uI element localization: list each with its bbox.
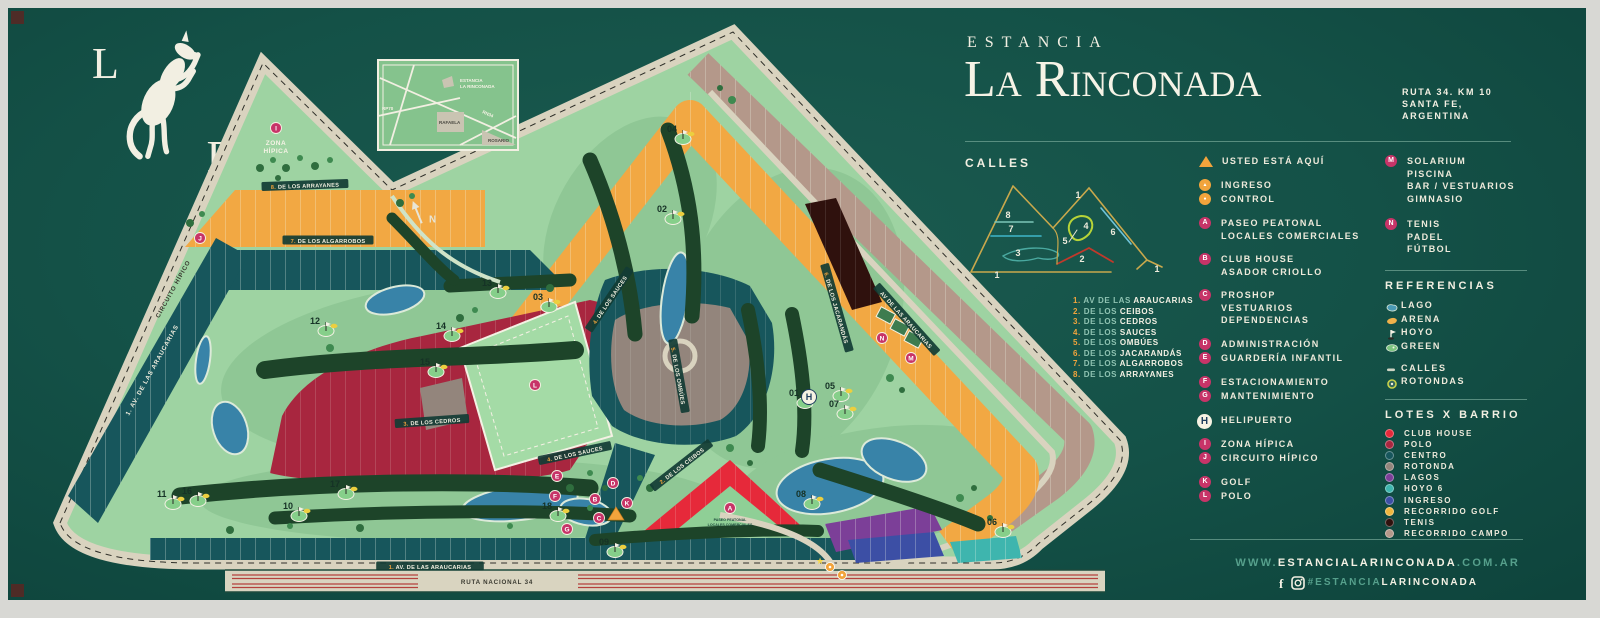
legend-item: GMANTENIMIENTO [1199, 390, 1369, 403]
facility-label-line: SOLARIUM [1407, 155, 1515, 168]
street-list-item: 6. DE LOS JACARANDÁS [1073, 349, 1203, 360]
website-url[interactable]: WWW.ESTANCIALARINCONADA.COM.AR [1235, 557, 1520, 569]
poster-frame: L R [0, 0, 1600, 618]
marker-H: H [1197, 414, 1212, 429]
lote-barrio-item: CENTRO [1385, 451, 1535, 460]
legend-group: APASEO PEATONALLOCALES COMERCIALES [1199, 217, 1369, 242]
referencias-heading: REFERENCIAS [1385, 280, 1535, 292]
calles-icon [1385, 364, 1399, 375]
marker-M: M [1385, 155, 1397, 167]
referencia-item: HOYO [1385, 327, 1535, 338]
street-list-item: 3. DE LOS CEDROS [1073, 317, 1203, 328]
barrio-label: CENTRO [1404, 451, 1447, 460]
barrio-label: HOYO 6 [1404, 484, 1444, 493]
calles-heading: CALLES [965, 156, 1190, 170]
lote-barrio-item: POLO [1385, 440, 1535, 449]
barrio-label: POLO [1404, 440, 1433, 449]
section-divider [1385, 270, 1527, 271]
lote-barrio-item: RECORRIDO CAMPO [1385, 529, 1535, 538]
referencia-icon [1385, 362, 1401, 373]
street-number: 8. [1073, 370, 1084, 379]
marker-N: N [1385, 218, 1397, 230]
social-hashtag[interactable]: #ESTANCIALARINCONADA [1308, 577, 1478, 588]
referencia-item: GREEN [1385, 340, 1535, 351]
diagram-street-number: 1 [1075, 190, 1080, 200]
legend-item: FESTACIONAMIENTO [1199, 376, 1369, 389]
legend-marker: K [1199, 476, 1212, 489]
barrio-label: ROTONDA [1404, 462, 1456, 471]
map-legend: USTED ESTÁ AQUÍ▲INGRESO●CONTROLAPASEO PE… [1199, 155, 1369, 514]
legend-item: APASEO PEATONALLOCALES COMERCIALES [1199, 217, 1369, 242]
facility-label-line: GIMNASIO [1407, 193, 1515, 206]
marker-C: C [1199, 289, 1211, 301]
street-name: CEIBOS [1120, 307, 1154, 316]
marker-B: B [1199, 253, 1211, 265]
legend-label-line: LOCALES COMERCIALES [1221, 230, 1360, 243]
legend-marker: H [1199, 414, 1212, 427]
legend-item: IZONA HÍPICA [1199, 438, 1369, 451]
legend-marker: J [1199, 452, 1212, 465]
arena-icon [1385, 315, 1399, 326]
brand-pretitle: ESTANCIA [967, 34, 1109, 52]
facility-marker: M [1385, 155, 1398, 168]
footer-divider [1190, 539, 1523, 540]
street-number: 4. [1073, 328, 1084, 337]
referencia-label: ARENA [1401, 314, 1441, 324]
diagram-street-number: 7 [1008, 224, 1013, 234]
legend-label: USTED ESTÁ AQUÍ [1222, 155, 1325, 168]
marker-G: G [1199, 390, 1211, 402]
street-list-item: 2. DE LOS CEIBOS [1073, 307, 1203, 318]
lote-barrio-item: LAGOS [1385, 473, 1535, 482]
street-name: OMBÚES [1120, 338, 1159, 347]
calles-diagram: 8731145261 [961, 172, 1171, 292]
hashtag-prefix: #ESTANCIA [1308, 577, 1382, 588]
lote-barrio-item: RECORRIDO GOLF [1385, 507, 1535, 516]
street-prefix: AV DE LAS [1083, 296, 1133, 305]
referencia-label: CALLES [1401, 363, 1447, 373]
url-suffix: .COM.AR [1457, 557, 1520, 569]
street-name: ARRAYANES [1120, 370, 1175, 379]
legend-marker: F [1199, 376, 1212, 389]
legend-label-line: ZONA HÍPICA [1221, 438, 1295, 451]
street-name: ARAUCARIAS [1133, 296, 1193, 305]
referencia-item: LAGO [1385, 300, 1535, 311]
street-prefix: DE LOS [1084, 317, 1120, 326]
legend-item: USTED ESTÁ AQUÍ [1199, 155, 1369, 168]
referencia-label: LAGO [1401, 300, 1433, 310]
lago-icon [1385, 302, 1399, 313]
street-number: 1. [1073, 296, 1083, 305]
barrio-color-dot [1385, 518, 1394, 527]
referencia-label: GREEN [1401, 341, 1441, 351]
hoyo-icon [1385, 329, 1399, 340]
facility-label-line: FÚTBOL [1407, 243, 1452, 256]
legend-group: USTED ESTÁ AQUÍ [1199, 155, 1369, 168]
marker-L: L [1199, 490, 1211, 502]
legend-item: JCIRCUITO HÍPICO [1199, 452, 1369, 465]
legend-marker: L [1199, 490, 1212, 503]
facility-group: MSOLARIUMPISCINABAR / VESTUARIOSGIMNASIO [1385, 155, 1535, 205]
legend-group: FESTACIONAMIENTOGMANTENIMIENTO [1199, 376, 1369, 403]
lotes-heading: LOTES X BARRIO [1385, 409, 1535, 421]
marker-E: E [1199, 352, 1211, 364]
legend-item: ▲INGRESO [1199, 179, 1369, 192]
legend-group: DADMINISTRACIÓNEGUARDERÍA INFANTIL [1199, 338, 1369, 365]
barrio-color-dot [1385, 496, 1394, 505]
marker-D: D [1199, 338, 1211, 350]
ingreso-marker-icon: ▲ [1199, 179, 1211, 191]
facility-marker: N [1385, 218, 1398, 231]
barrio-label: RECORRIDO CAMPO [1404, 529, 1509, 538]
legend-label-line: ADMINISTRACIÓN [1221, 338, 1320, 351]
diagram-street-number: 5 [1062, 236, 1067, 246]
legend-label-line: VESTUARIOS [1221, 302, 1309, 315]
legend-item: ●CONTROL [1199, 193, 1369, 206]
diagram-street-number: 8 [1005, 210, 1010, 220]
legend-label-line: PROSHOP [1221, 289, 1309, 302]
referencia-item: ARENA [1385, 313, 1535, 324]
marker-K: K [1199, 476, 1211, 488]
barrio-color-dot [1385, 473, 1394, 482]
legend-label-line: MANTENIMIENTO [1221, 390, 1315, 403]
legend-group: KGOLFLPOLO [1199, 476, 1369, 503]
facility-group: NTENISPADELFÚTBOL [1385, 218, 1535, 256]
referencia-icon [1385, 340, 1401, 351]
legend-group: BCLUB HOUSEASADOR CRIOLLO [1199, 253, 1369, 278]
facility-item: MSOLARIUMPISCINABAR / VESTUARIOSGIMNASIO [1385, 155, 1535, 205]
legend-item: EGUARDERÍA INFANTIL [1199, 352, 1369, 365]
referencia-icon [1385, 313, 1401, 324]
street-number: 6. [1073, 349, 1084, 358]
legend-label-line: USTED ESTÁ AQUÍ [1222, 155, 1325, 168]
lote-barrio-item: HOYO 6 [1385, 484, 1535, 493]
legend-label-line: ESTACIONAMIENTO [1221, 376, 1329, 389]
legend-marker: A [1199, 217, 1212, 230]
lote-barrio-item: ROTONDA [1385, 462, 1535, 471]
marker-I: I [1199, 438, 1211, 450]
marker-F: F [1199, 376, 1211, 388]
street-list-item: 4. DE LOS SAUCES [1073, 328, 1203, 339]
diagram-street-number: 1 [994, 270, 999, 280]
legend-label: GOLF [1221, 476, 1252, 489]
diagram-street-number: 3 [1015, 248, 1020, 258]
chalkboard-background: L R [8, 8, 1586, 600]
facility-label-line: TENIS [1407, 218, 1452, 231]
street-name: ALGARROBOS [1120, 359, 1184, 368]
legend-marker: B [1199, 253, 1212, 266]
info-panel: ESTANCIA La Rinconada RUTA 34. KM 10 SAN… [8, 8, 1586, 600]
legend-marker: I [1199, 438, 1212, 451]
legend-label-line: CONTROL [1221, 193, 1275, 206]
street-list-item: 1. AV DE LAS ARAUCARIAS [1073, 296, 1203, 307]
rotondas-icon [1385, 378, 1399, 389]
lotes-list: CLUB HOUSEPOLOCENTROROTONDALAGOSHOYO 6IN… [1385, 429, 1535, 539]
legend-label-line: GOLF [1221, 476, 1252, 489]
barrio-label: LAGOS [1404, 473, 1440, 482]
green-icon [1385, 342, 1399, 353]
page-title: La Rinconada [964, 52, 1261, 108]
street-prefix: DE LOS [1084, 349, 1120, 358]
right-column: MSOLARIUMPISCINABAR / VESTUARIOSGIMNASIO… [1385, 155, 1535, 540]
legend-label-line: PASEO PEATONAL [1221, 217, 1360, 230]
street-number: 2. [1073, 307, 1084, 316]
referencias-list: LAGOARENAHOYOGREENCALLESROTONDAS [1385, 300, 1535, 387]
legend-group: ▲INGRESO●CONTROL [1199, 179, 1369, 206]
address-block: RUTA 34. KM 10 SANTA FE, ARGENTINA [1402, 86, 1492, 122]
facility-item: NTENISPADELFÚTBOL [1385, 218, 1535, 256]
legend-label: PROSHOPVESTUARIOSDEPENDENCIAS [1221, 289, 1309, 327]
social-icons: f [1278, 576, 1308, 590]
lote-barrio-item: TENIS [1385, 518, 1535, 527]
barrio-color-dot [1385, 484, 1394, 493]
legend-label-line: DEPENDENCIAS [1221, 314, 1309, 327]
lote-barrio-item: INGRESO [1385, 496, 1535, 505]
address-line: SANTA FE, [1402, 98, 1492, 110]
title-divider [965, 141, 1511, 142]
referencia-label: HOYO [1401, 327, 1434, 337]
barrio-color-dot [1385, 429, 1394, 438]
url-main: ESTANCIALARINCONADA [1278, 557, 1457, 569]
legend-label-line: HELIPUERTO [1221, 414, 1293, 427]
barrio-label: CLUB HOUSE [1404, 429, 1473, 438]
referencia-item: CALLES [1385, 362, 1535, 373]
legend-marker: D [1199, 338, 1212, 351]
referencia-icon [1385, 327, 1401, 338]
referencia-icon [1385, 376, 1401, 387]
barrio-color-dot [1385, 462, 1394, 471]
legend-label-line: INGRESO [1221, 179, 1272, 192]
legend-label: POLO [1221, 490, 1252, 503]
marker-A: A [1199, 217, 1211, 229]
street-prefix: DE LOS [1084, 338, 1120, 347]
legend-label-line: GUARDERÍA INFANTIL [1221, 352, 1343, 365]
facility-label-line: PISCINA [1407, 168, 1515, 181]
lote-barrio-item: CLUB HOUSE [1385, 429, 1535, 438]
control-marker-icon: ● [1199, 193, 1211, 205]
usted-esta-aqui-icon [1199, 156, 1213, 167]
barrio-label: RECORRIDO GOLF [1404, 507, 1500, 516]
url-prefix: WWW. [1235, 557, 1277, 569]
facility-label: TENISPADELFÚTBOL [1407, 218, 1452, 256]
legend-marker: E [1199, 352, 1212, 365]
legend-label: ADMINISTRACIÓN [1221, 338, 1320, 351]
street-prefix: DE LOS [1084, 307, 1120, 316]
street-number: 7. [1073, 359, 1084, 368]
street-name: SAUCES [1120, 328, 1157, 337]
legend-label: PASEO PEATONALLOCALES COMERCIALES [1221, 217, 1360, 242]
street-list-item: 5. DE LOS OMBÚES [1073, 338, 1203, 349]
legend-label: ZONA HÍPICA [1221, 438, 1295, 451]
legend-label-line: ASADOR CRIOLLO [1221, 266, 1323, 279]
legend-marker: ▲ [1199, 179, 1212, 192]
legend-label-line: CIRCUITO HÍPICO [1221, 452, 1319, 465]
street-name: JACARANDÁS [1120, 349, 1182, 358]
street-prefix: DE LOS [1084, 328, 1120, 337]
facility-label: SOLARIUMPISCINABAR / VESTUARIOSGIMNASIO [1407, 155, 1515, 205]
legend-marker: ● [1199, 193, 1212, 206]
street-number: 3. [1073, 317, 1084, 326]
street-prefix: DE LOS [1084, 370, 1120, 379]
legend-item: DADMINISTRACIÓN [1199, 338, 1369, 351]
street-list-item: 7. DE LOS ALGARROBOS [1073, 359, 1203, 370]
facebook-icon[interactable]: f [1279, 576, 1284, 590]
barrio-label: INGRESO [1404, 496, 1452, 505]
legend-label: INGRESO [1221, 179, 1272, 192]
barrio-color-dot [1385, 440, 1394, 449]
calles-section: CALLES 8731145261 1. AV D [965, 156, 1190, 170]
street-number: 5. [1073, 338, 1084, 347]
legend-label: MANTENIMIENTO [1221, 390, 1315, 403]
section-divider [1385, 399, 1527, 400]
legend-label: CIRCUITO HÍPICO [1221, 452, 1319, 465]
legend-group: CPROSHOPVESTUARIOSDEPENDENCIAS [1199, 289, 1369, 327]
address-line: RUTA 34. KM 10 [1402, 86, 1492, 98]
barrio-color-dot [1385, 507, 1394, 516]
legend-label-line: POLO [1221, 490, 1252, 503]
legend-item: CPROSHOPVESTUARIOSDEPENDENCIAS [1199, 289, 1369, 327]
hashtag-main: LARINCONADA [1382, 577, 1478, 588]
marker-J: J [1199, 452, 1211, 464]
street-list: 1. AV DE LAS ARAUCARIAS2. DE LOS CEIBOS3… [1073, 296, 1203, 380]
legend-group: HHELIPUERTO [1199, 414, 1369, 427]
referencia-label: ROTONDAS [1401, 376, 1465, 386]
facility-label-line: PADEL [1407, 231, 1452, 244]
legend-label: GUARDERÍA INFANTIL [1221, 352, 1343, 365]
legend-item: LPOLO [1199, 490, 1369, 503]
referencia-icon [1385, 300, 1401, 311]
street-list-item: 8. DE LOS ARRAYANES [1073, 370, 1203, 381]
legend-marker: C [1199, 289, 1212, 302]
legend-label: CLUB HOUSEASADOR CRIOLLO [1221, 253, 1323, 278]
diagram-street-number: 1 [1154, 264, 1159, 274]
diagram-street-number: 2 [1079, 254, 1084, 264]
legend-label: HELIPUERTO [1221, 414, 1293, 427]
legend-label: ESTACIONAMIENTO [1221, 376, 1329, 389]
legend-item: KGOLF [1199, 476, 1369, 489]
diagram-street-number: 4 [1083, 221, 1088, 231]
legend-marker [1199, 155, 1213, 168]
barrio-color-dot [1385, 451, 1394, 460]
diagram-street-number: 6 [1110, 227, 1115, 237]
facility-label-line: BAR / VESTUARIOS [1407, 180, 1515, 193]
instagram-icon[interactable] [1292, 577, 1304, 589]
legend-label: CONTROL [1221, 193, 1275, 206]
street-prefix: DE LOS [1084, 359, 1120, 368]
legend-item: HHELIPUERTO [1199, 414, 1369, 427]
facilities-legend: MSOLARIUMPISCINABAR / VESTUARIOSGIMNASIO… [1385, 155, 1535, 256]
referencia-item: ROTONDAS [1385, 376, 1535, 387]
legend-marker: G [1199, 390, 1212, 403]
street-name: CEDROS [1120, 317, 1158, 326]
barrio-color-dot [1385, 529, 1394, 538]
legend-item: BCLUB HOUSEASADOR CRIOLLO [1199, 253, 1369, 278]
legend-group: IZONA HÍPICAJCIRCUITO HÍPICO [1199, 438, 1369, 465]
legend-label-line: CLUB HOUSE [1221, 253, 1323, 266]
barrio-label: TENIS [1404, 518, 1436, 527]
address-line: ARGENTINA [1402, 110, 1492, 122]
